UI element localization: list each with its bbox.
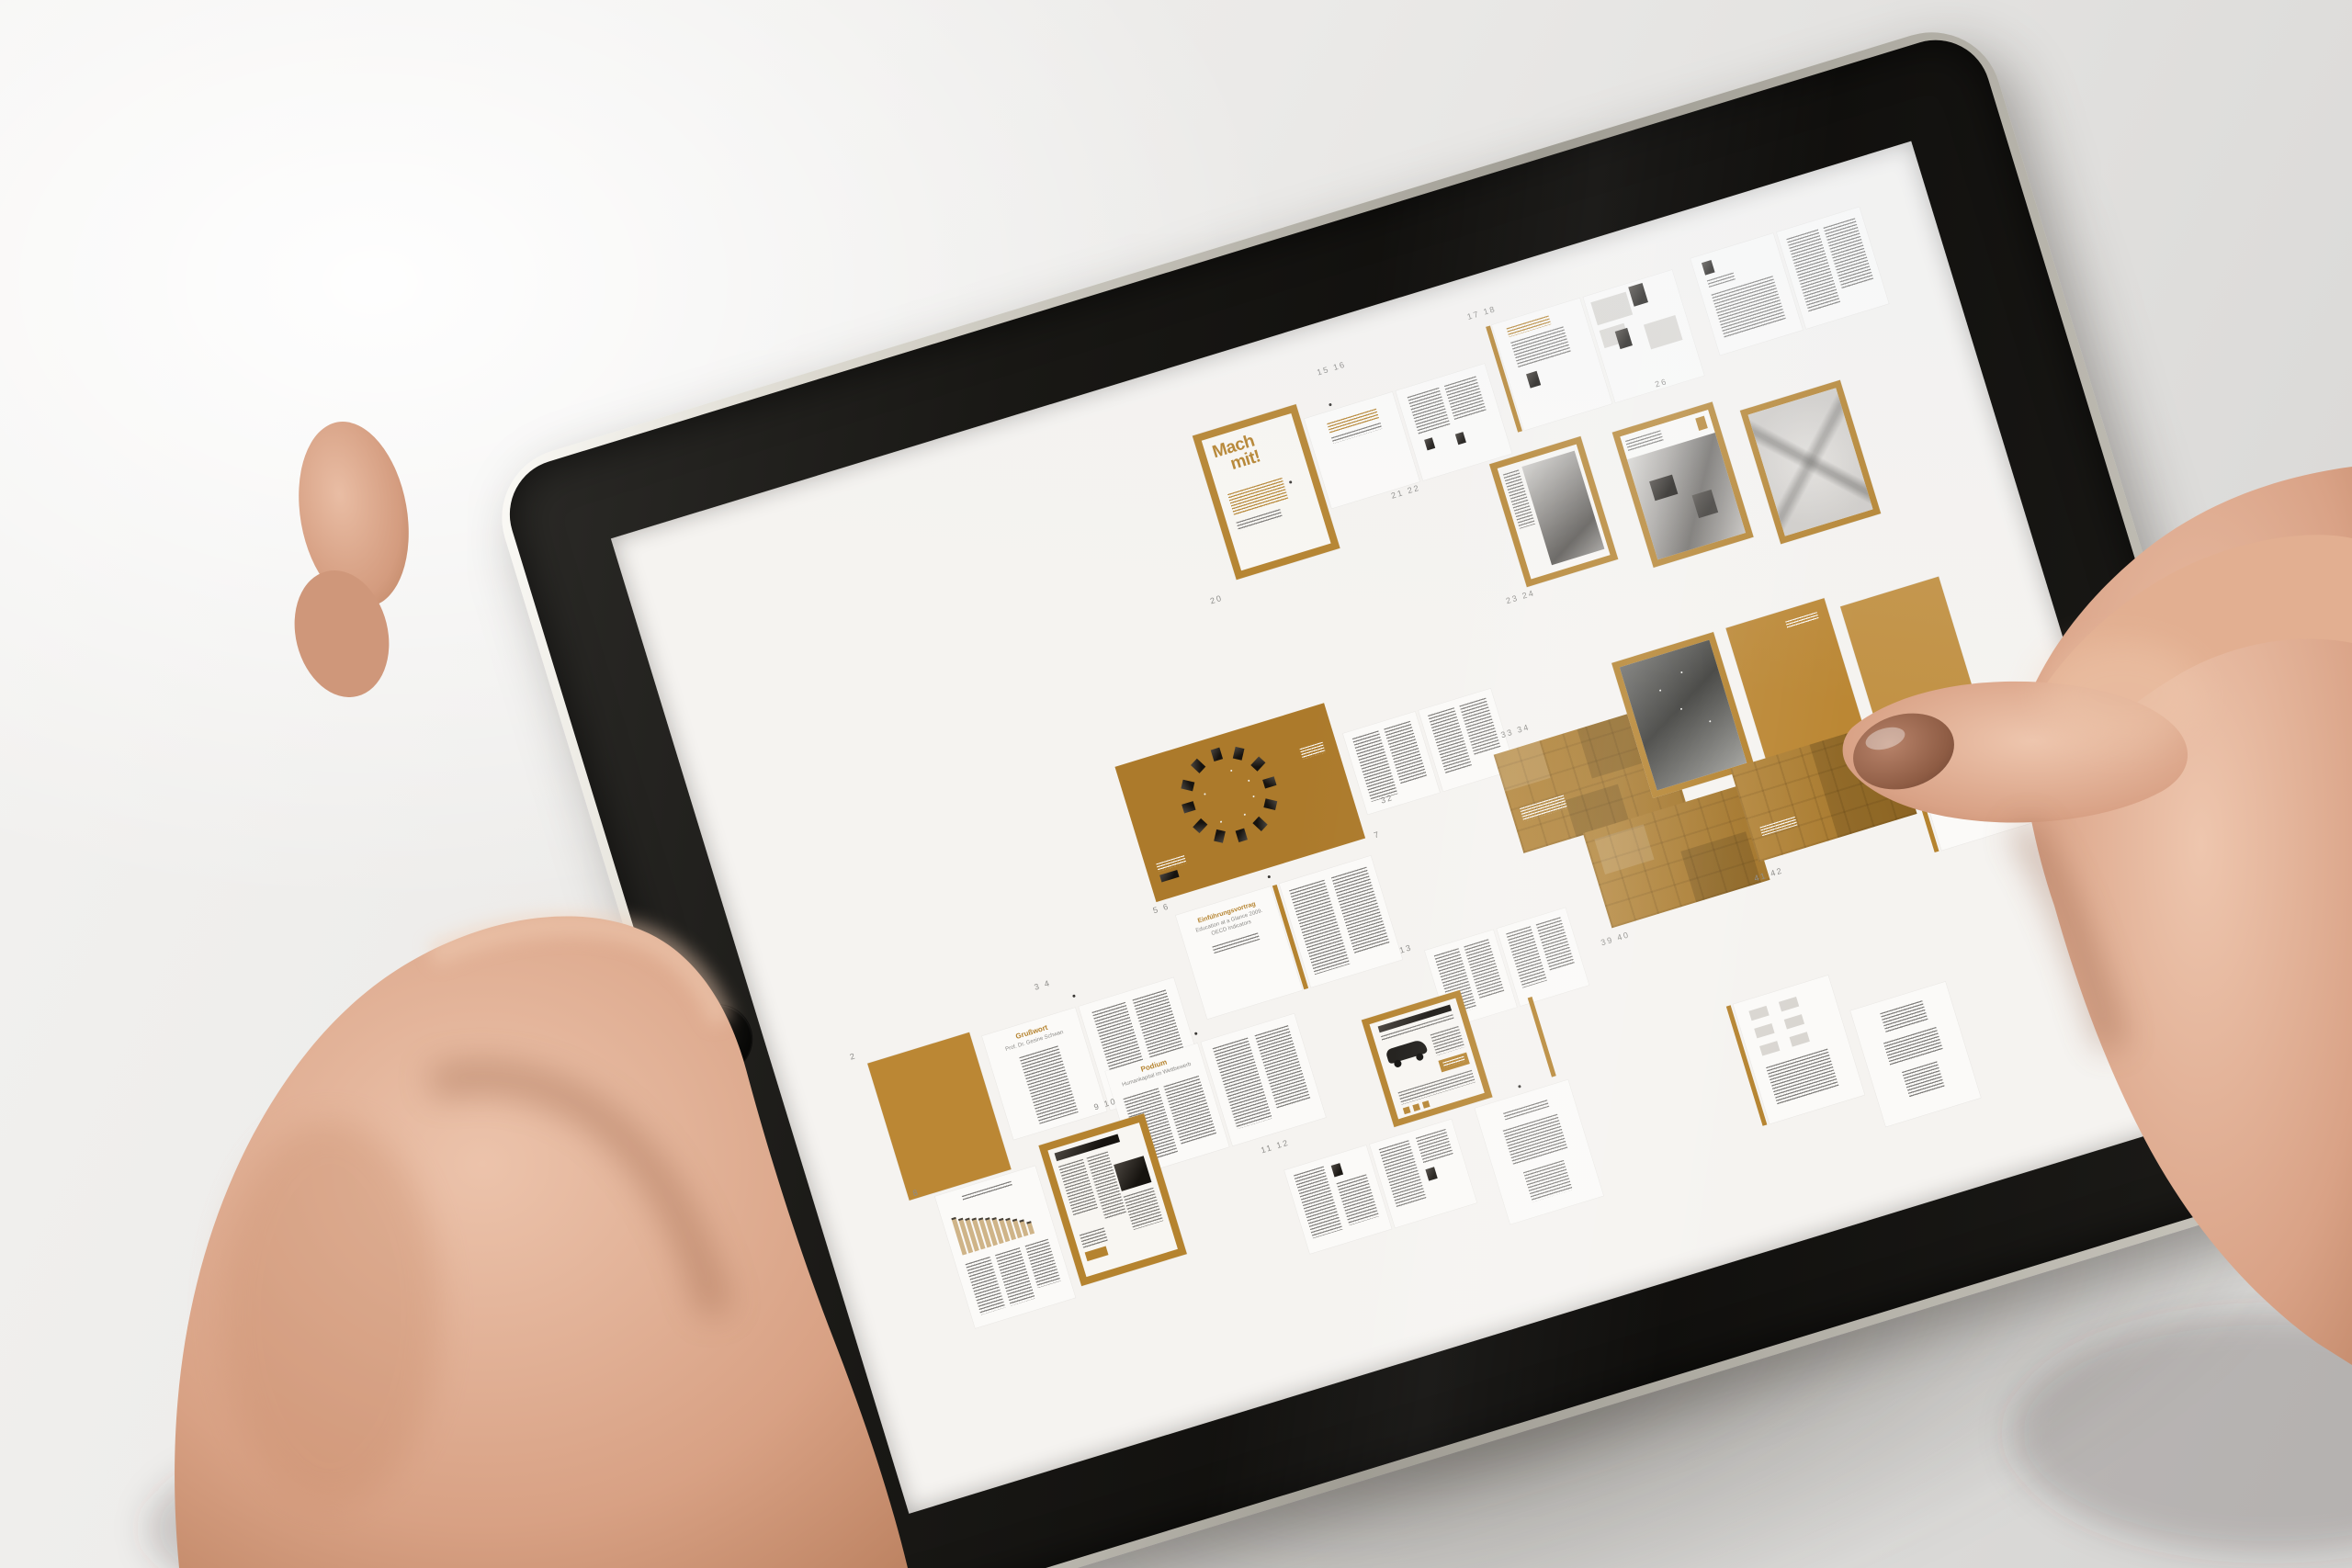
photo-scene: Machmit! — [0, 0, 2352, 1568]
hands-front-layer — [0, 0, 2352, 1568]
knuckle-highlight — [2040, 641, 2205, 748]
desk-shadow-right — [2012, 1314, 2352, 1552]
left-hand — [175, 916, 908, 1568]
right-hand — [1843, 467, 2352, 1365]
left-wrist-shading — [220, 1121, 441, 1506]
